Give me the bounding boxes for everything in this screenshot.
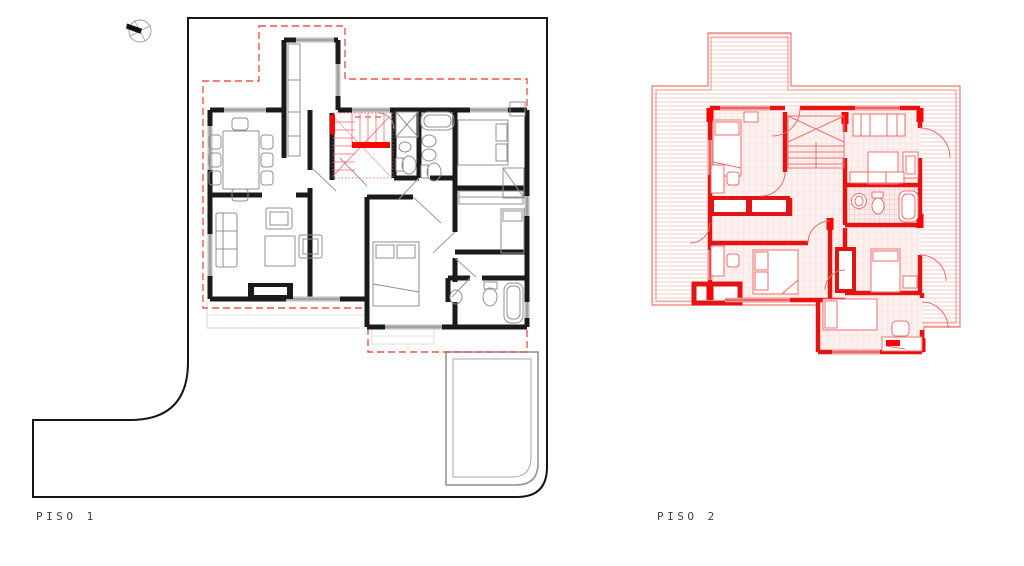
- bath-small-fixtures: [396, 112, 418, 174]
- north-compass-icon: [126, 20, 151, 42]
- master-bed: [373, 242, 419, 306]
- floor-plans-drawing: [0, 0, 1024, 566]
- fireplace: [248, 283, 293, 299]
- piso-2-label: PISO 2: [657, 510, 718, 523]
- stairs-red: [330, 113, 393, 178]
- piso-1-plan: [33, 18, 547, 497]
- hall-closet: [288, 44, 300, 156]
- dining-set: [209, 118, 273, 201]
- page: PISO 1 PISO 2: [0, 0, 1024, 566]
- piso-2-plan: [652, 33, 960, 352]
- stair-section-cut: [352, 142, 390, 148]
- patio-pool: [446, 352, 538, 485]
- bedroom-mr-furniture: [459, 191, 524, 253]
- terrace-lines: [207, 301, 434, 344]
- living-room-furniture: [216, 208, 322, 267]
- bath-big-fixtures: [421, 112, 454, 181]
- piso-1-label: PISO 1: [36, 510, 97, 523]
- bedroom-tr-furniture: [458, 102, 525, 198]
